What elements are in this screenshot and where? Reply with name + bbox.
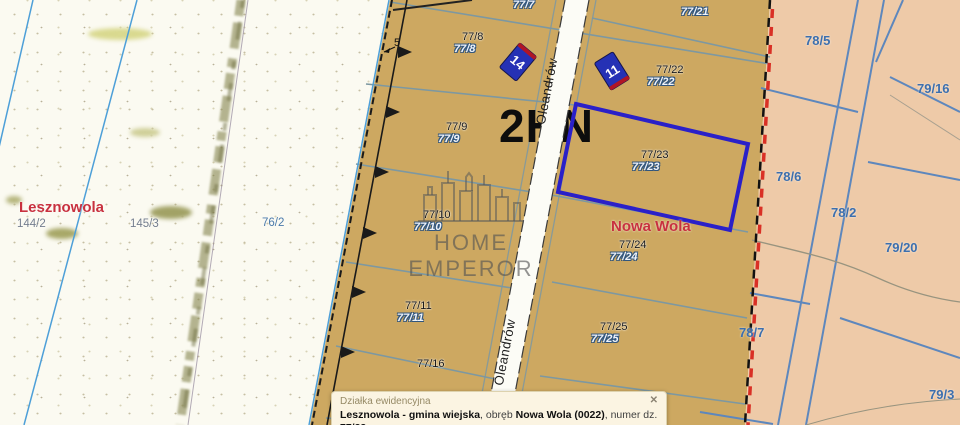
parcel-label: 77/10: [414, 222, 442, 233]
infobox-parcel-line: Lesznowola - gmina wiejska, obręb Nowa W…: [340, 409, 658, 425]
parcel-label: 77/24: [610, 252, 638, 263]
parcel-label: 78/7: [739, 327, 764, 338]
parcel-label: 76/2: [262, 218, 284, 229]
parcel-label: 79/16: [917, 83, 950, 94]
parcel-label: 77/9: [438, 134, 459, 145]
parcel-label: 144/2: [17, 219, 46, 230]
parcel-label: 77/23: [641, 150, 669, 161]
infobox-municipality: Lesznowola - gmina wiejska: [340, 409, 480, 421]
parcel-label: 78/5: [805, 35, 830, 46]
infobox-sep: , obręb: [480, 409, 516, 421]
parcel-label: 77/22: [647, 77, 675, 88]
parcel-label: 77/23: [632, 162, 660, 173]
parcel-label: 79/3: [929, 389, 954, 400]
parcel-label: 77/11: [397, 313, 424, 324]
parcel-label: 78/2: [831, 207, 856, 218]
tree-line-edge: [188, 0, 248, 425]
parcel-info-popup: Działka ewidencyjna ✕ Lesznowola - gmina…: [331, 391, 667, 425]
infobox-title: Działka ewidencyjna: [340, 396, 431, 408]
infobox-sep: , numer dz.: [605, 409, 658, 421]
town-label-nowa-wola: Nowa Wola: [611, 218, 691, 235]
parcel-label: 77/11: [405, 301, 432, 312]
parcel-label: 78/6: [776, 171, 801, 182]
close-icon[interactable]: ✕: [650, 396, 658, 406]
tree-line-strip: [182, 0, 243, 425]
map-layers: 2HN Oleandrów Oleandrów 5: [0, 0, 960, 425]
parcel-label: 145/3: [130, 219, 159, 230]
parcel-label: 77/16: [417, 359, 445, 370]
parcel-label: 77/24: [619, 240, 647, 251]
parcel-label: 77/8: [462, 32, 483, 43]
parcel-label: 77/7: [513, 0, 534, 11]
infobox-district: Nowa Wola (0022): [516, 409, 605, 421]
parcel-label: 77/22: [656, 65, 684, 76]
parcel-label: 77/25: [600, 322, 628, 333]
parcel-label: 77/25: [591, 334, 619, 345]
parcel-label: 77/8: [454, 44, 475, 55]
parcel-label: 77/10: [423, 210, 451, 221]
parcel-label: 79/20: [885, 242, 918, 253]
town-label-lesznowola: Lesznowola: [19, 199, 104, 216]
cadastral-map-canvas[interactable]: 2HN Oleandrów Oleandrów 5: [0, 0, 960, 425]
parcel-label: 77/9: [446, 122, 467, 133]
parcel-label: 77/21: [681, 7, 709, 18]
